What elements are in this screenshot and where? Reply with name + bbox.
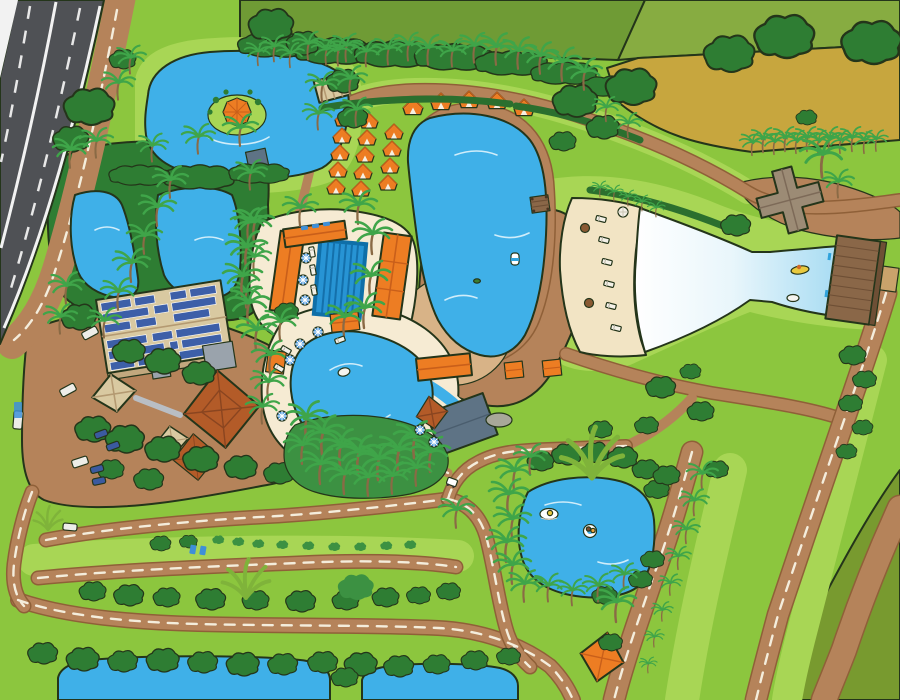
swim-ring	[584, 525, 597, 538]
pier-steps	[880, 266, 899, 292]
buoy	[511, 253, 519, 265]
paddle-boat	[540, 509, 558, 520]
mini-cabana	[542, 359, 562, 377]
rock	[486, 413, 512, 427]
lakeside-dock	[530, 195, 550, 213]
float	[787, 295, 799, 302]
beach-umbrella	[618, 207, 628, 217]
bus-stripe	[14, 402, 22, 418]
map-canvas	[0, 0, 900, 700]
duck	[474, 279, 481, 283]
beach-table	[585, 299, 594, 308]
mini-cabana	[504, 361, 524, 379]
beach-table	[581, 224, 590, 233]
resort-map	[0, 0, 900, 700]
beach-lodge	[416, 353, 472, 381]
